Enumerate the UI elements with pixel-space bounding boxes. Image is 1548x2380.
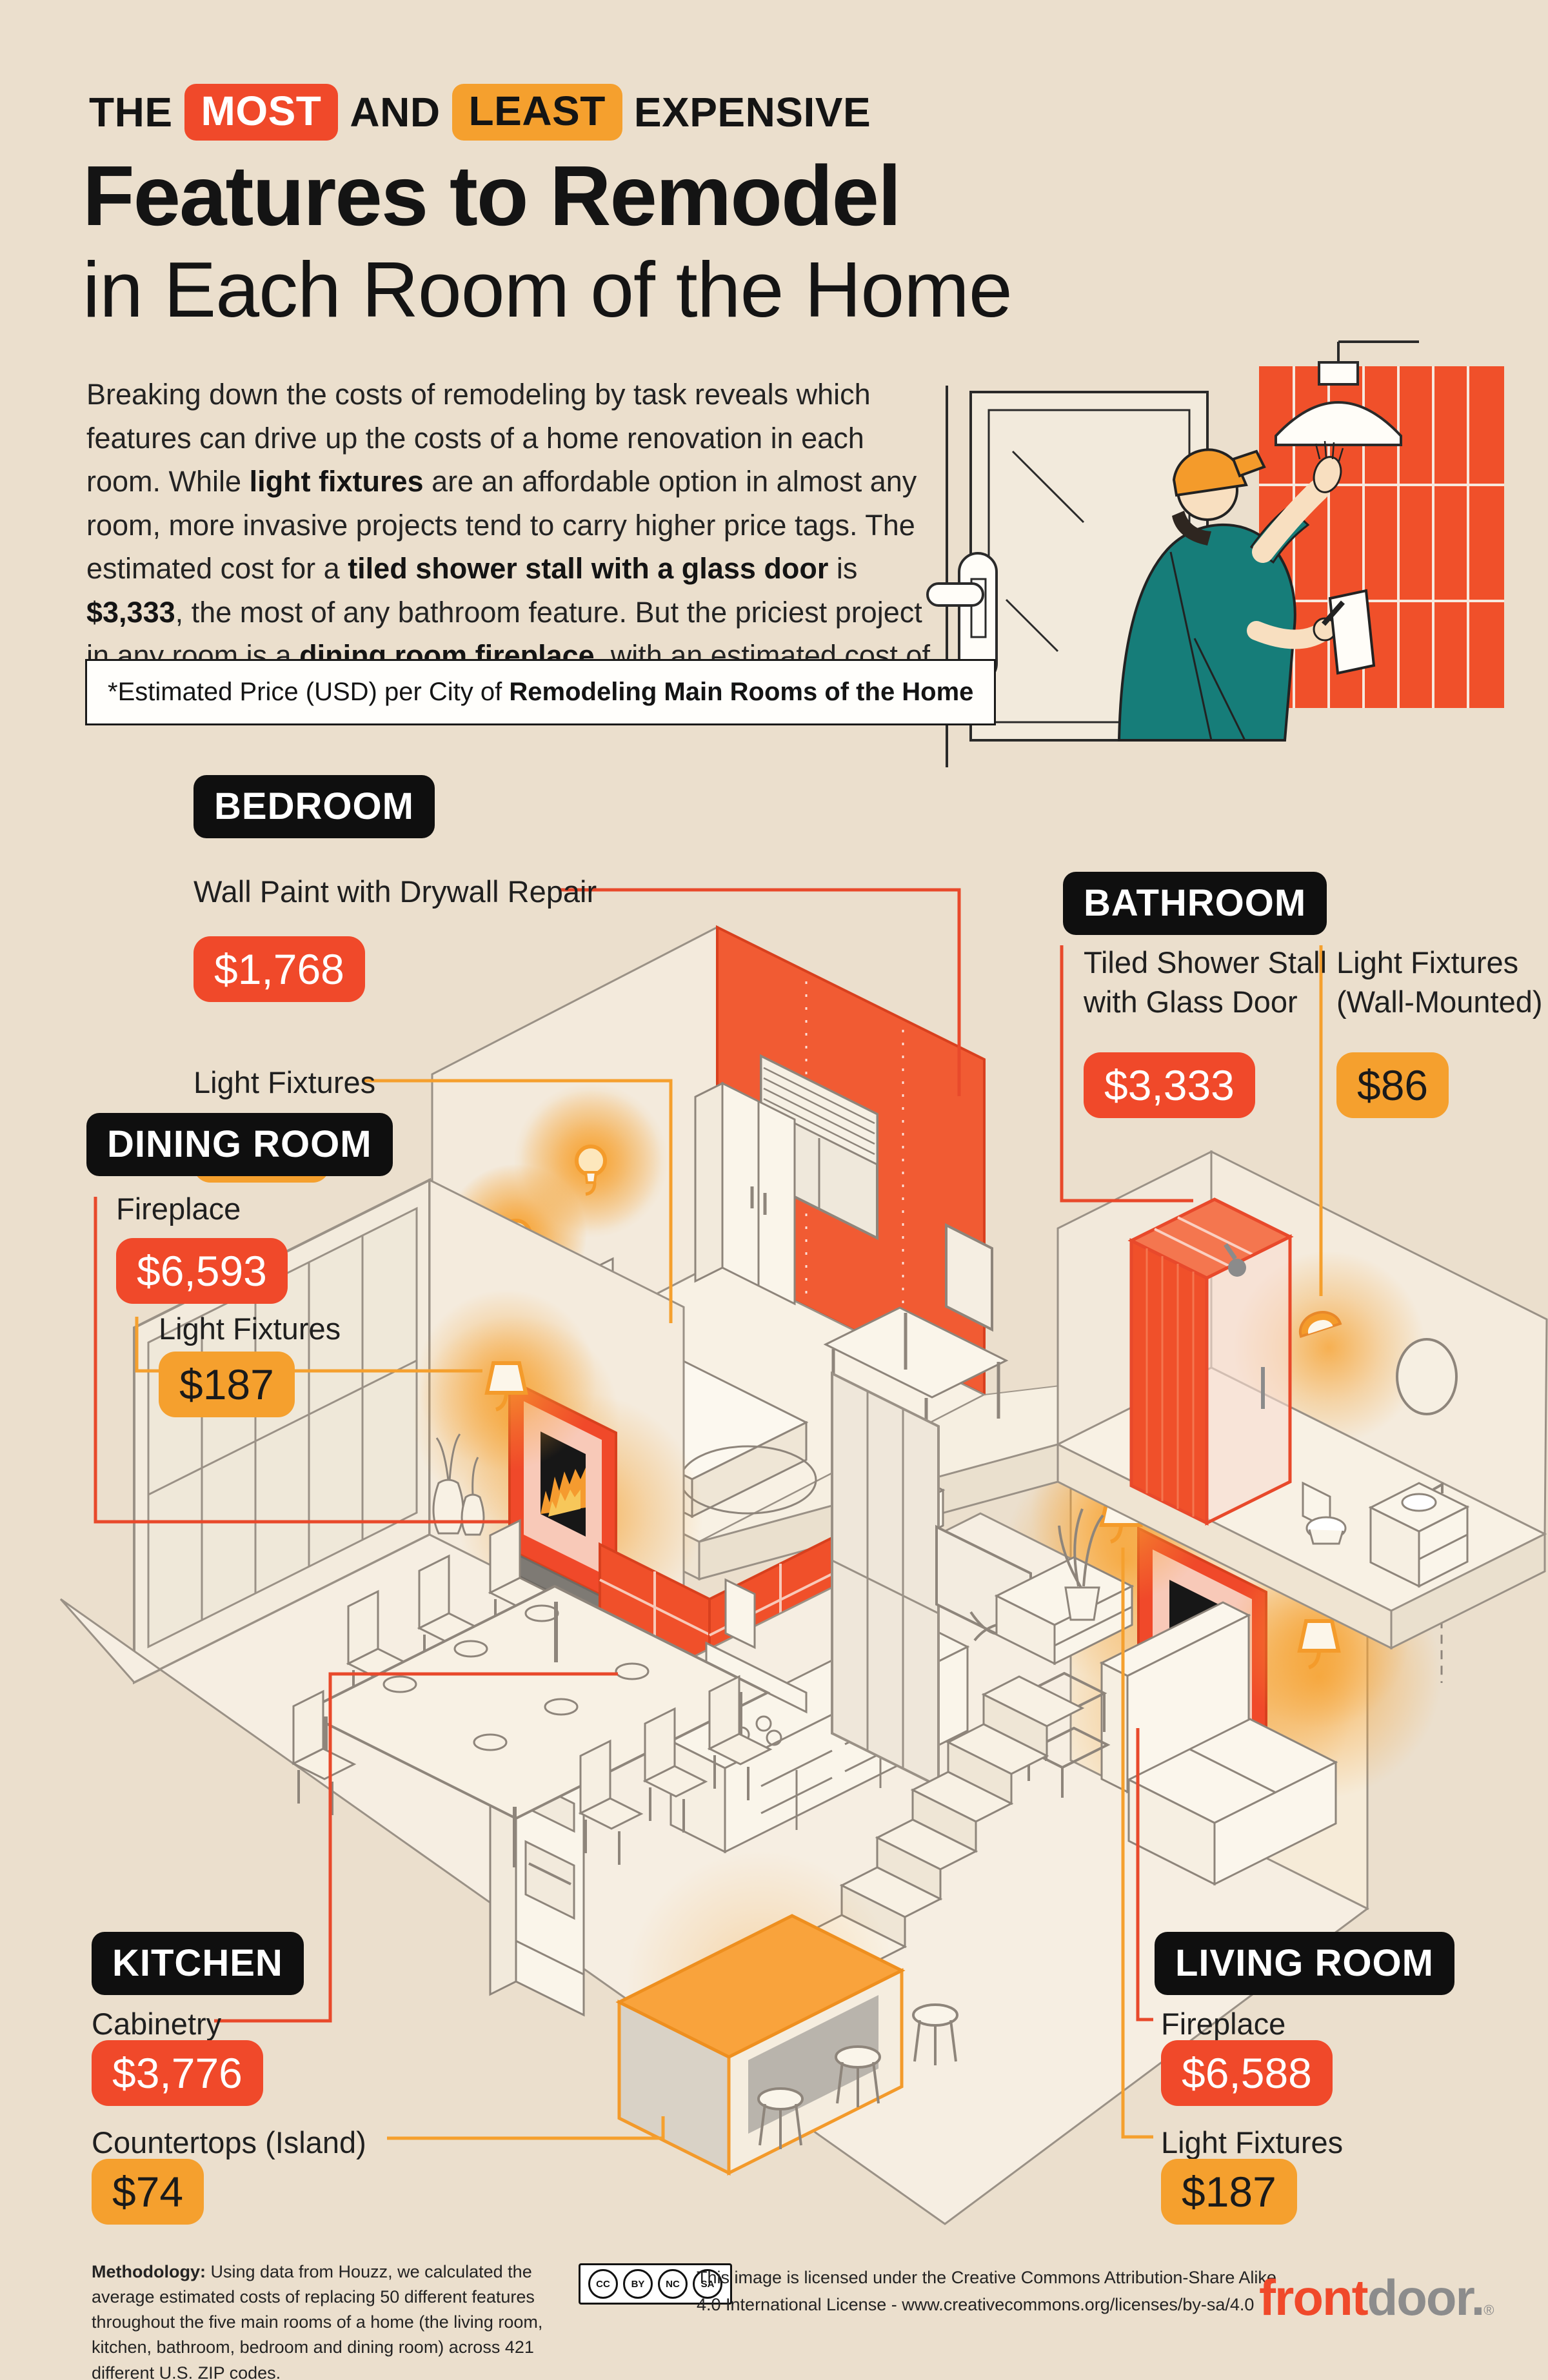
room-badge-bedroom: BEDROOM	[193, 775, 435, 838]
glass-door	[832, 1373, 938, 1786]
room-badge-kitchen: KITCHEN	[92, 1932, 304, 1995]
wall-sconce-icon	[416, 1290, 597, 1470]
kicker: THE MOST AND LEAST EXPENSIVE	[89, 84, 871, 141]
frontdoor-logo: frontdoor.®	[1259, 2272, 1493, 2323]
feature-kitchen-countertops: Countertops (Island)	[92, 2123, 366, 2162]
feature-kitchen-cabinetry: Cabinetry	[92, 2004, 221, 2043]
kicker-least-pill: LEAST	[452, 84, 622, 141]
wardrobe	[695, 1083, 795, 1304]
price-bathroom-lights: $86	[1336, 1052, 1449, 1118]
price-kitchen-cabinetry: $3,776	[92, 2040, 263, 2106]
tiled-shower	[1131, 1199, 1290, 1523]
license-text: This image is licensed under the Creativ…	[697, 2265, 1276, 2319]
price-dining-fireplace: $6,593	[116, 1238, 288, 1304]
price-kitchen-countertops: $74	[92, 2159, 204, 2225]
feature-dining-fireplace: Fireplace	[116, 1189, 241, 1228]
feature-bathroom-lights: Light Fixtures (Wall-Mounted)	[1336, 943, 1548, 1021]
feature-bedroom-lights: Light Fixtures	[193, 1063, 375, 1102]
cc-nc-icon: NC	[658, 2269, 688, 2299]
page-title: Features to Remodel	[83, 153, 900, 239]
feature-dining-lights: Light Fixtures	[159, 1309, 341, 1348]
price-bathroom-shower: $3,333	[1084, 1052, 1255, 1118]
feature-bathroom-shower: Tiled Shower Stall with Glass Door	[1084, 943, 1342, 1021]
kicker-pre: THE	[89, 88, 173, 136]
kicker-post: EXPENSIVE	[634, 88, 871, 136]
kicker-most-pill: MOST	[184, 84, 339, 141]
room-badge-bathroom: BATHROOM	[1063, 872, 1327, 935]
cc-icon: CC	[588, 2269, 618, 2299]
cc-by-icon: BY	[623, 2269, 653, 2299]
round-mirror	[1397, 1339, 1456, 1414]
price-note: *Estimated Price (USD) per City of Remod…	[85, 659, 996, 725]
infographic-canvas: THE MOST AND LEAST EXPENSIVE Features to…	[0, 0, 1548, 2380]
room-badge-living: LIVING ROOM	[1155, 1932, 1454, 1995]
price-living-fireplace: $6,588	[1161, 2040, 1333, 2106]
page-subtitle: in Each Room of the Home	[83, 250, 1012, 329]
price-bedroom-wall-paint: $1,768	[193, 936, 365, 1002]
price-dining-lights: $187	[159, 1352, 295, 1417]
price-living-lights: $187	[1161, 2159, 1297, 2225]
feature-living-fireplace: Fireplace	[1161, 2004, 1285, 2043]
feature-living-lights: Light Fixtures	[1161, 2123, 1343, 2162]
worker-illustration	[928, 342, 1504, 767]
room-badge-dining: DINING ROOM	[86, 1113, 393, 1176]
feature-bedroom-wall-paint: Wall Paint with Drywall Repair	[193, 872, 597, 911]
kicker-and: AND	[350, 88, 440, 136]
methodology-text: Methodology: Using data from Houzz, we c…	[92, 2259, 543, 2380]
